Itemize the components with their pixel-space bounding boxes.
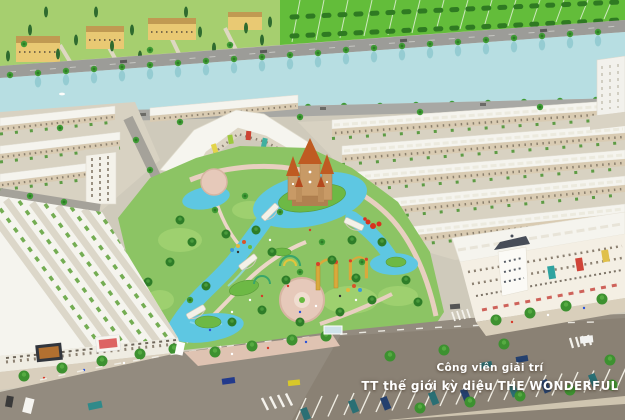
villa-building (148, 18, 196, 40)
caption-line1: Công viên giải trí (350, 362, 625, 375)
billboard (95, 335, 120, 352)
aerial-masterplan-render: Công viên giải trí TT thế giới kỳ diệu T… (0, 0, 625, 420)
park-entrance-canopy (324, 326, 342, 334)
billboard (35, 343, 63, 363)
boat (59, 93, 65, 96)
white-van (580, 335, 594, 343)
render-scene (0, 0, 625, 420)
gray-car (450, 304, 460, 310)
villa-building (86, 26, 124, 49)
caption-overlay: Công viên giải trí TT thế giới kỳ diệu T… (350, 362, 625, 394)
corner-tower-building (84, 146, 118, 204)
villa-building (16, 36, 60, 62)
caption-line2: TT thế giới kỳ diệu THE WONDERFUL (350, 379, 625, 393)
